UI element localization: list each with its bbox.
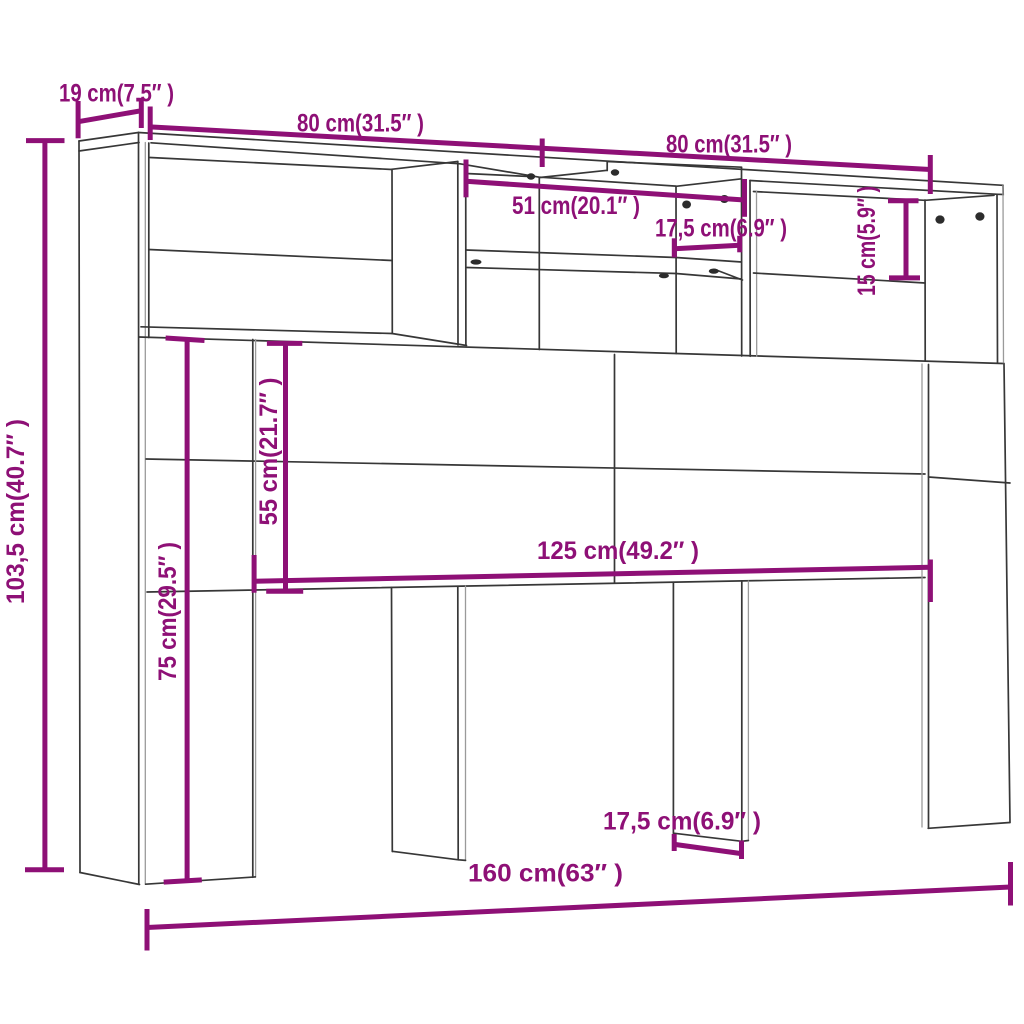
svg-text:125 cm(49.2″ ): 125 cm(49.2″ ) [537,537,699,565]
svg-text:160 cm(63″ ): 160 cm(63″ ) [468,860,623,888]
svg-text:17,5 cm(6.9″ ): 17,5 cm(6.9″ ) [655,215,787,243]
svg-text:75 cm(29.5″ ): 75 cm(29.5″ ) [154,542,182,681]
svg-text:55 cm(21.7″ ): 55 cm(21.7″ ) [255,378,283,526]
svg-text:17,5 cm(6.9″ ): 17,5 cm(6.9″ ) [603,808,761,836]
svg-text:19 cm(7.5″ ): 19 cm(7.5″ ) [59,80,174,108]
svg-text:103,5 cm(40.7″ ): 103,5 cm(40.7″ ) [2,419,30,604]
svg-text:80 cm(31.5″ ): 80 cm(31.5″ ) [666,131,792,159]
svg-text:80 cm(31.5″ ): 80 cm(31.5″ ) [297,110,424,138]
svg-text:51 cm(20.1″ ): 51 cm(20.1″ ) [512,192,640,220]
svg-text:15 cm(5.9″ ): 15 cm(5.9″ ) [853,186,881,296]
